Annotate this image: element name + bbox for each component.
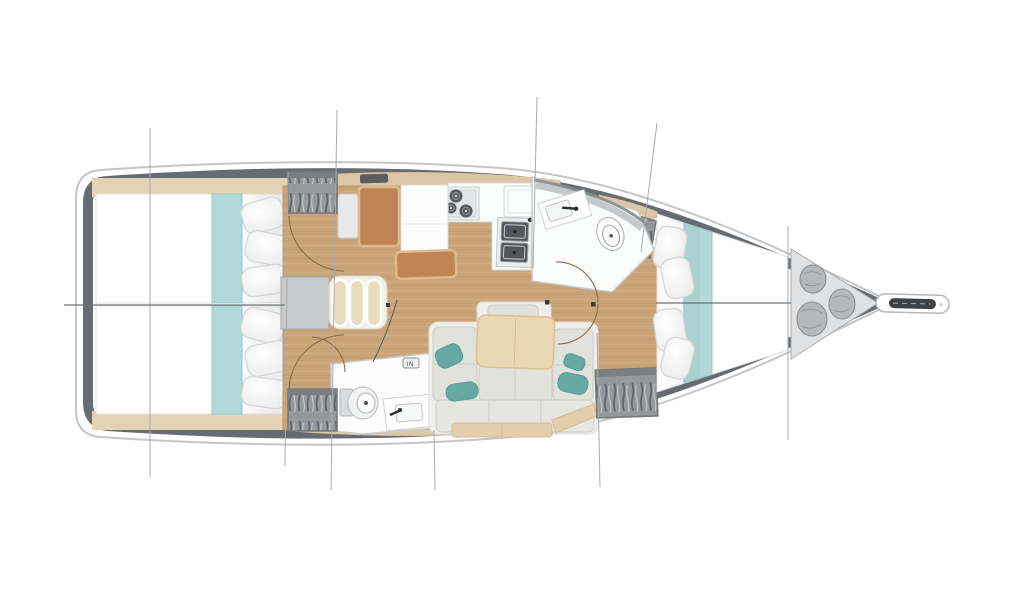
bowsprit xyxy=(876,294,949,314)
aft-berth-starboard xyxy=(96,305,293,414)
salon xyxy=(429,302,598,437)
galley-double-sink xyxy=(496,217,533,267)
salon-table xyxy=(476,315,555,370)
fender-bag xyxy=(800,265,826,293)
step xyxy=(367,280,381,326)
nav-side-cabinet xyxy=(338,194,358,238)
berth-runner-teal xyxy=(212,306,242,414)
fender-bag xyxy=(797,302,827,336)
yacht-floor-plan: IN xyxy=(0,0,1024,600)
locker-aft-starboard xyxy=(288,389,337,431)
bow-locker xyxy=(791,249,878,359)
in-chip-label: IN xyxy=(407,361,415,368)
fridge xyxy=(504,186,536,217)
toilet xyxy=(348,387,378,419)
aft-berth-port xyxy=(96,194,293,303)
nav-bench xyxy=(396,250,457,279)
locker-aft-port xyxy=(288,172,337,213)
berth-runner-teal xyxy=(212,194,242,303)
companionway-steps xyxy=(329,276,387,329)
floor-plan-canvas: IN xyxy=(0,0,1024,600)
head-washbasin xyxy=(383,394,436,431)
step xyxy=(350,280,364,326)
companionway-hatch xyxy=(360,174,388,184)
companionway-landing xyxy=(281,277,329,329)
step xyxy=(333,280,347,326)
chart-table xyxy=(401,185,448,255)
locker-salon xyxy=(595,368,658,418)
stove xyxy=(444,187,479,220)
fender-bag xyxy=(829,289,855,319)
in-chip: IN xyxy=(403,358,419,368)
nav-seat xyxy=(359,187,399,246)
